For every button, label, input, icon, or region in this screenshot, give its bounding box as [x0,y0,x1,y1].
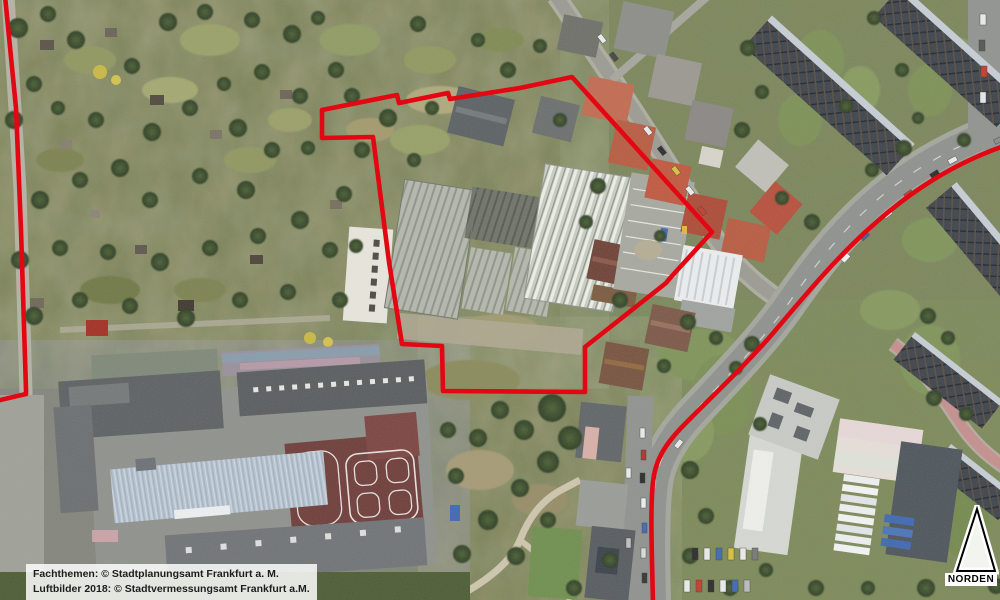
attribution-line-1: Fachthemen: © Stadtplanungsamt Frankfurt… [33,567,310,582]
north-arrow-label: NORDEN [945,573,997,586]
north-arrow-icon [943,505,999,575]
north-arrow: NORDEN [942,505,1000,586]
copyright-attribution: Fachthemen: © Stadtplanungsamt Frankfurt… [26,564,317,600]
attribution-line-2: Luftbilder 2018: © Stadtvermessungsamt F… [33,582,310,597]
aerial-photo [0,0,1000,600]
map-viewport: Fachthemen: © Stadtplanungsamt Frankfurt… [0,0,1000,600]
